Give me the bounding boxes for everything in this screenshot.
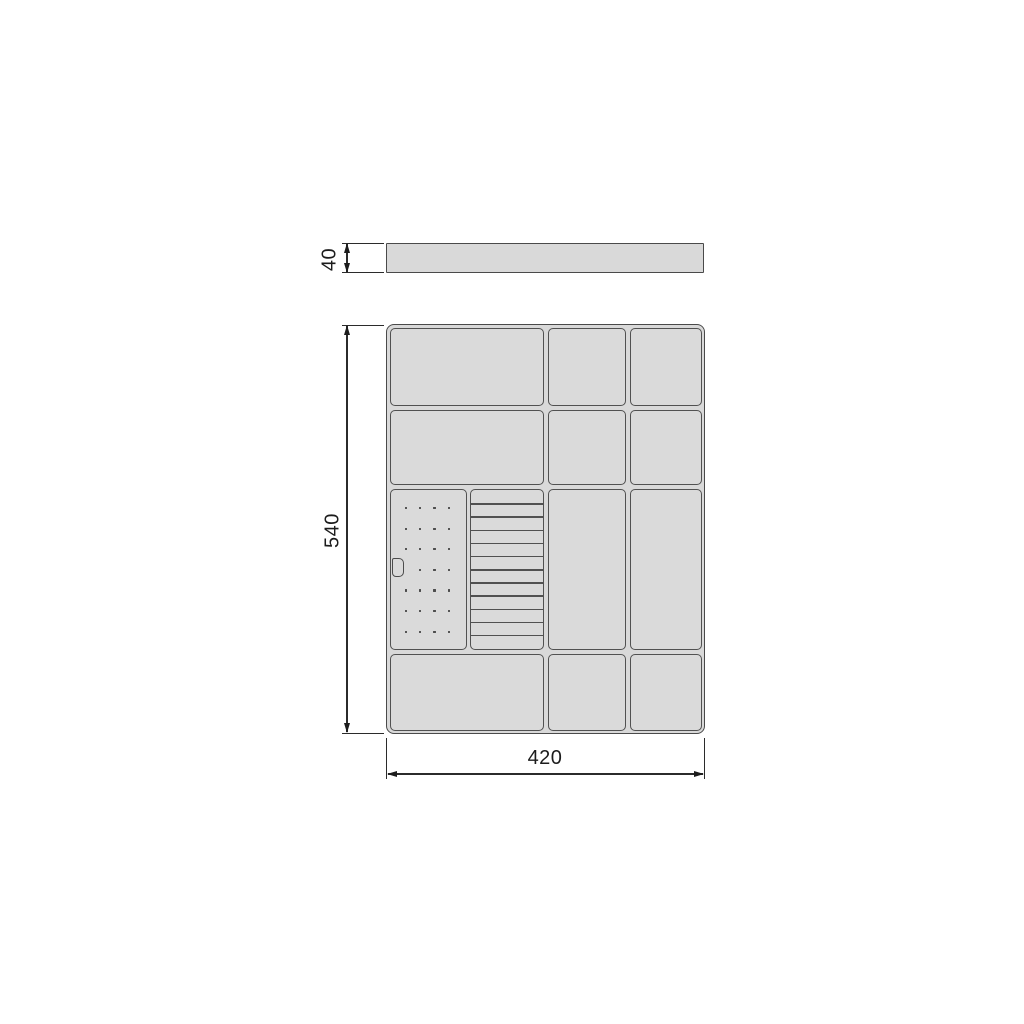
peg-dot <box>433 631 435 633</box>
knife-slat-line <box>471 530 543 532</box>
peg-dot <box>448 569 450 571</box>
knife-slat-line <box>471 503 543 505</box>
peg-panel <box>390 489 467 650</box>
dim-540-line <box>346 326 347 732</box>
compartment-r1-middle <box>548 328 626 406</box>
knife-slat-line <box>471 609 543 611</box>
side-view-bar <box>386 243 704 273</box>
peg-dot <box>405 610 407 612</box>
compartment-r4-right <box>630 654 702 731</box>
clip-shape-icon <box>392 558 404 577</box>
compartment-r4-left <box>390 654 544 731</box>
top-view-tray <box>386 324 705 734</box>
peg-dot <box>433 528 435 530</box>
peg-dot <box>405 528 407 530</box>
knife-slat-line <box>471 635 543 637</box>
knife-slat-line <box>471 516 543 518</box>
dim-540-arrow-down <box>344 723 350 733</box>
knife-slat-line <box>471 543 543 545</box>
peg-dot <box>419 631 421 633</box>
dim-420-label: 420 <box>495 747 595 770</box>
dim-40-label: 40 <box>319 236 342 284</box>
knife-slat-line <box>471 569 543 571</box>
knife-slat-line <box>471 556 543 558</box>
knife-slat-line <box>471 622 543 624</box>
compartment-r4-middle <box>548 654 626 731</box>
peg-dot <box>448 528 450 530</box>
peg-dot <box>448 589 450 591</box>
peg-dot <box>433 569 435 571</box>
peg-dot <box>448 548 450 550</box>
peg-dot <box>433 610 435 612</box>
dim-420-arrow-right <box>694 771 704 777</box>
peg-dot <box>448 507 450 509</box>
compartment-r2-middle <box>548 410 626 485</box>
peg-dot <box>405 548 407 550</box>
peg-dot <box>419 610 421 612</box>
knife-slat-line <box>471 582 543 584</box>
peg-dot <box>405 589 407 591</box>
peg-dot <box>419 507 421 509</box>
peg-dot <box>405 507 407 509</box>
peg-dot <box>405 631 407 633</box>
compartment-r2-left <box>390 410 544 485</box>
peg-dot <box>448 610 450 612</box>
compartment-r1-right <box>630 328 702 406</box>
peg-dot <box>419 589 421 591</box>
dim-540-label: 540 <box>322 501 345 561</box>
peg-dot <box>448 631 450 633</box>
knife-block <box>470 489 544 650</box>
dim-540-arrow-up <box>344 325 350 335</box>
dim-420-arrow-left <box>387 771 397 777</box>
compartment-r3-right <box>630 489 702 650</box>
compartment-r3-middle <box>548 489 626 650</box>
knife-slat-lines <box>471 490 543 649</box>
peg-dot <box>433 507 435 509</box>
dim-40-arrow-down <box>344 263 350 273</box>
dim-40-arrow-up <box>344 243 350 253</box>
technical-drawing-canvas: 40 540 420 <box>0 0 1024 1024</box>
compartment-r2-right <box>630 410 702 485</box>
peg-dot <box>419 548 421 550</box>
compartment-r1-left <box>390 328 544 406</box>
peg-dot <box>419 528 421 530</box>
peg-dot <box>419 569 421 571</box>
dim-420-line <box>388 773 703 774</box>
knife-slat-line <box>471 595 543 597</box>
peg-dot <box>433 589 435 591</box>
peg-dot <box>433 548 435 550</box>
